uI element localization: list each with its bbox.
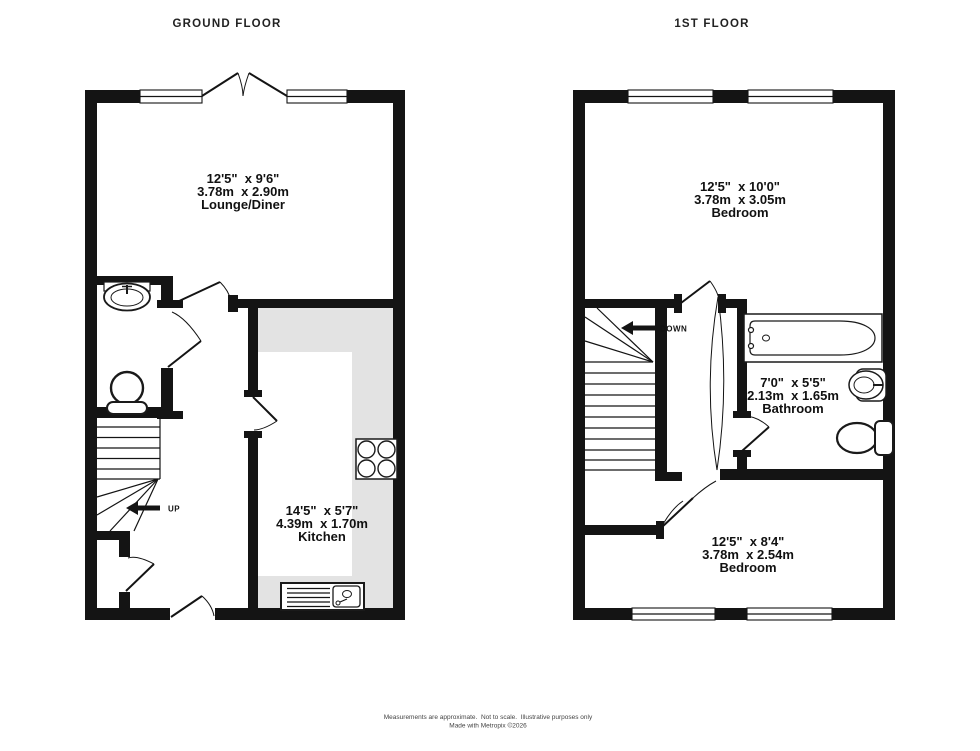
first-floor-title: 1ST FLOOR <box>674 18 749 30</box>
window <box>140 90 202 103</box>
ground-floor-title: GROUND FLOOR <box>173 18 282 30</box>
ff-room-labels: 12'5" x 10'0" 3.78m x 3.05m Bedroom 7'0"… <box>694 179 839 575</box>
window <box>628 90 713 103</box>
bedroom-rear-name: Bedroom <box>719 560 776 575</box>
front-bedroom-door <box>681 281 724 470</box>
credit-text: Made with Metropix ©2026 <box>449 722 527 730</box>
wc-door <box>168 312 201 367</box>
cupboard-door <box>126 557 154 591</box>
window <box>748 90 833 103</box>
ground-floor-plan: UP <box>85 73 405 620</box>
disclaimer-text: Measurements are approximate. Not to sca… <box>384 714 593 721</box>
wash-basin <box>104 282 150 311</box>
front-door <box>171 596 214 617</box>
hob <box>356 439 397 479</box>
kitchen-door <box>253 397 277 430</box>
bathroom-door <box>742 416 769 451</box>
bedroom-front-name: Bedroom <box>711 205 768 220</box>
gf-wc-fixtures <box>104 282 150 414</box>
floorplan-canvas: GROUND FLOOR 1ST FLOOR <box>0 0 980 751</box>
kitchen-sink <box>281 583 364 610</box>
floorplan-svg: GROUND FLOOR 1ST FLOOR <box>0 0 980 751</box>
down-arrow-icon <box>621 321 655 335</box>
gf-room-labels: 12'5" x 9'6" 3.78m x 2.90m Lounge/Diner … <box>197 171 368 544</box>
toilet <box>837 421 893 455</box>
first-floor-plan: DOWN 12'5" x 10'0" <box>573 90 895 620</box>
wash-basin <box>849 369 886 401</box>
stairs-up-label: UP <box>168 505 180 514</box>
kitchen-name: Kitchen <box>298 529 346 544</box>
bathroom-name: Bathroom <box>762 401 823 416</box>
lounge-door <box>177 282 231 302</box>
french-doors <box>202 73 287 96</box>
stairs-down-label: DOWN <box>660 325 687 334</box>
gf-staircase: UP <box>97 418 180 531</box>
toilet <box>107 372 147 414</box>
window <box>287 90 347 103</box>
window <box>747 608 832 620</box>
lounge-name: Lounge/Diner <box>201 197 285 212</box>
rear-bedroom-door <box>661 481 716 528</box>
footer: Measurements are approximate. Not to sca… <box>384 714 593 730</box>
bathtub <box>744 314 882 362</box>
ff-staircase: DOWN <box>585 308 687 470</box>
window <box>632 608 715 620</box>
